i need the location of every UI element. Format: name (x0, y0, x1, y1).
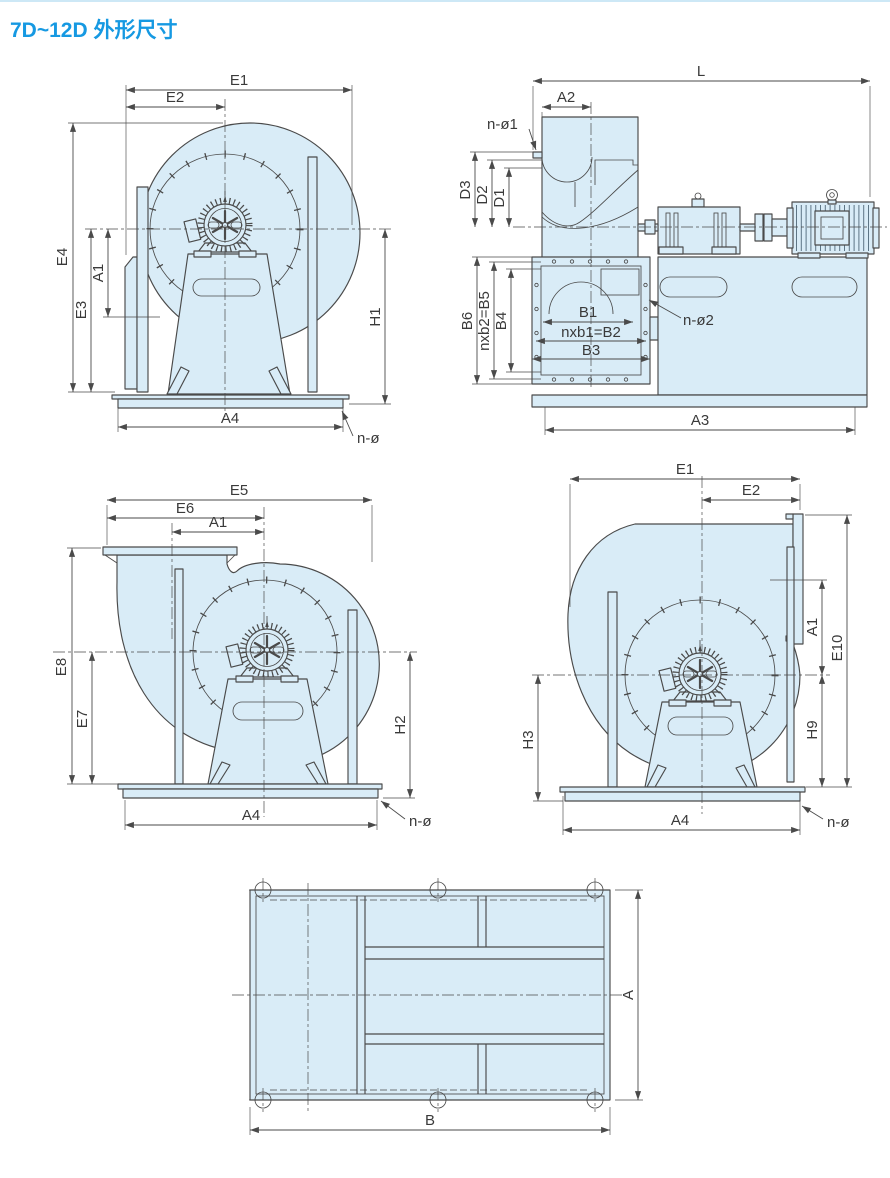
dim-e3-label: E3 (73, 301, 90, 319)
dim-e5-label: E5 (230, 482, 248, 499)
dim-a-label: A (620, 990, 637, 1000)
pedestal (208, 679, 328, 784)
dim-a1-label: A1 (209, 514, 227, 531)
dim-b6-label: B6 (459, 312, 476, 330)
dim-e10-label: E10 (829, 635, 846, 662)
base-plate (112, 395, 349, 408)
dim-a4-label: A4 (242, 807, 260, 824)
dim-no-label: n-ø (827, 814, 850, 831)
end-view-top-left: E1 E2 E4 E3 A1 H1 A4 n-ø (55, 67, 455, 467)
dim-e1-label: E1 (676, 461, 694, 478)
dim-e7-label: E7 (74, 710, 91, 728)
dim-b4-label: B4 (493, 312, 510, 330)
dim-e8-label: E8 (53, 658, 70, 676)
dim-h3-label: H3 (520, 730, 537, 749)
dim-no-label: n-ø (357, 430, 380, 447)
end-view-middle-right: E1 E2 A1 E10 H9 H3 A4 n-ø (490, 462, 890, 864)
dim-e2-label: E2 (742, 482, 760, 499)
dim-a1-label: A1 (90, 264, 107, 282)
dim-h1-label: H1 (367, 307, 384, 326)
drawing-page: 7D~12D 外形尺寸 (0, 0, 890, 1178)
dim-b-label: B (425, 1112, 435, 1129)
base-frame-plan-view: A B (230, 867, 680, 1162)
dim-d2-label: D2 (474, 185, 491, 204)
dim-e4-label: E4 (54, 248, 71, 266)
dim-l-label: L (697, 63, 705, 80)
dim-d3-label: D3 (457, 180, 474, 199)
dim-no-label: n-ø (409, 813, 432, 830)
dim-no1-label: n-ø1 (487, 116, 518, 133)
base-plate (532, 395, 867, 407)
dim-a1-label: A1 (804, 618, 821, 636)
dim-b2-label: nxb1=B2 (561, 324, 621, 341)
base-plate (118, 784, 382, 798)
motor (787, 190, 879, 259)
dim-h2-label: H2 (392, 715, 409, 734)
dim-b1-label: B1 (579, 304, 597, 321)
dim-d1-label: D1 (491, 188, 508, 207)
dim-b5-label: nxb2=B5 (476, 291, 493, 351)
page-title: 7D~12D 外形尺寸 (10, 14, 177, 44)
bearing-unit (658, 193, 740, 254)
dim-h9-label: H9 (804, 720, 821, 739)
dim-b3-label: B3 (582, 342, 600, 359)
side-view-with-motor: L A2 n-ø1 D3 D2 D1 B6 nxb2=B5 B4 B1 nxb1… (455, 57, 890, 457)
dim-e1-label: E1 (230, 72, 248, 89)
dim-a4-label: A4 (671, 812, 689, 829)
dim-a2-label: A2 (557, 89, 575, 106)
base-plate (560, 787, 805, 801)
outlet-duct (533, 117, 638, 260)
dim-no2-label: n-ø2 (683, 312, 714, 329)
end-view-middle-left: E5 E6 A1 E8 E7 H2 A4 n-ø (45, 467, 475, 867)
dim-e2-label: E2 (166, 89, 184, 106)
dim-e6-label: E6 (176, 500, 194, 517)
dim-a3-label: A3 (691, 412, 709, 429)
dim-a4-label: A4 (221, 410, 239, 427)
pedestal (645, 702, 757, 787)
